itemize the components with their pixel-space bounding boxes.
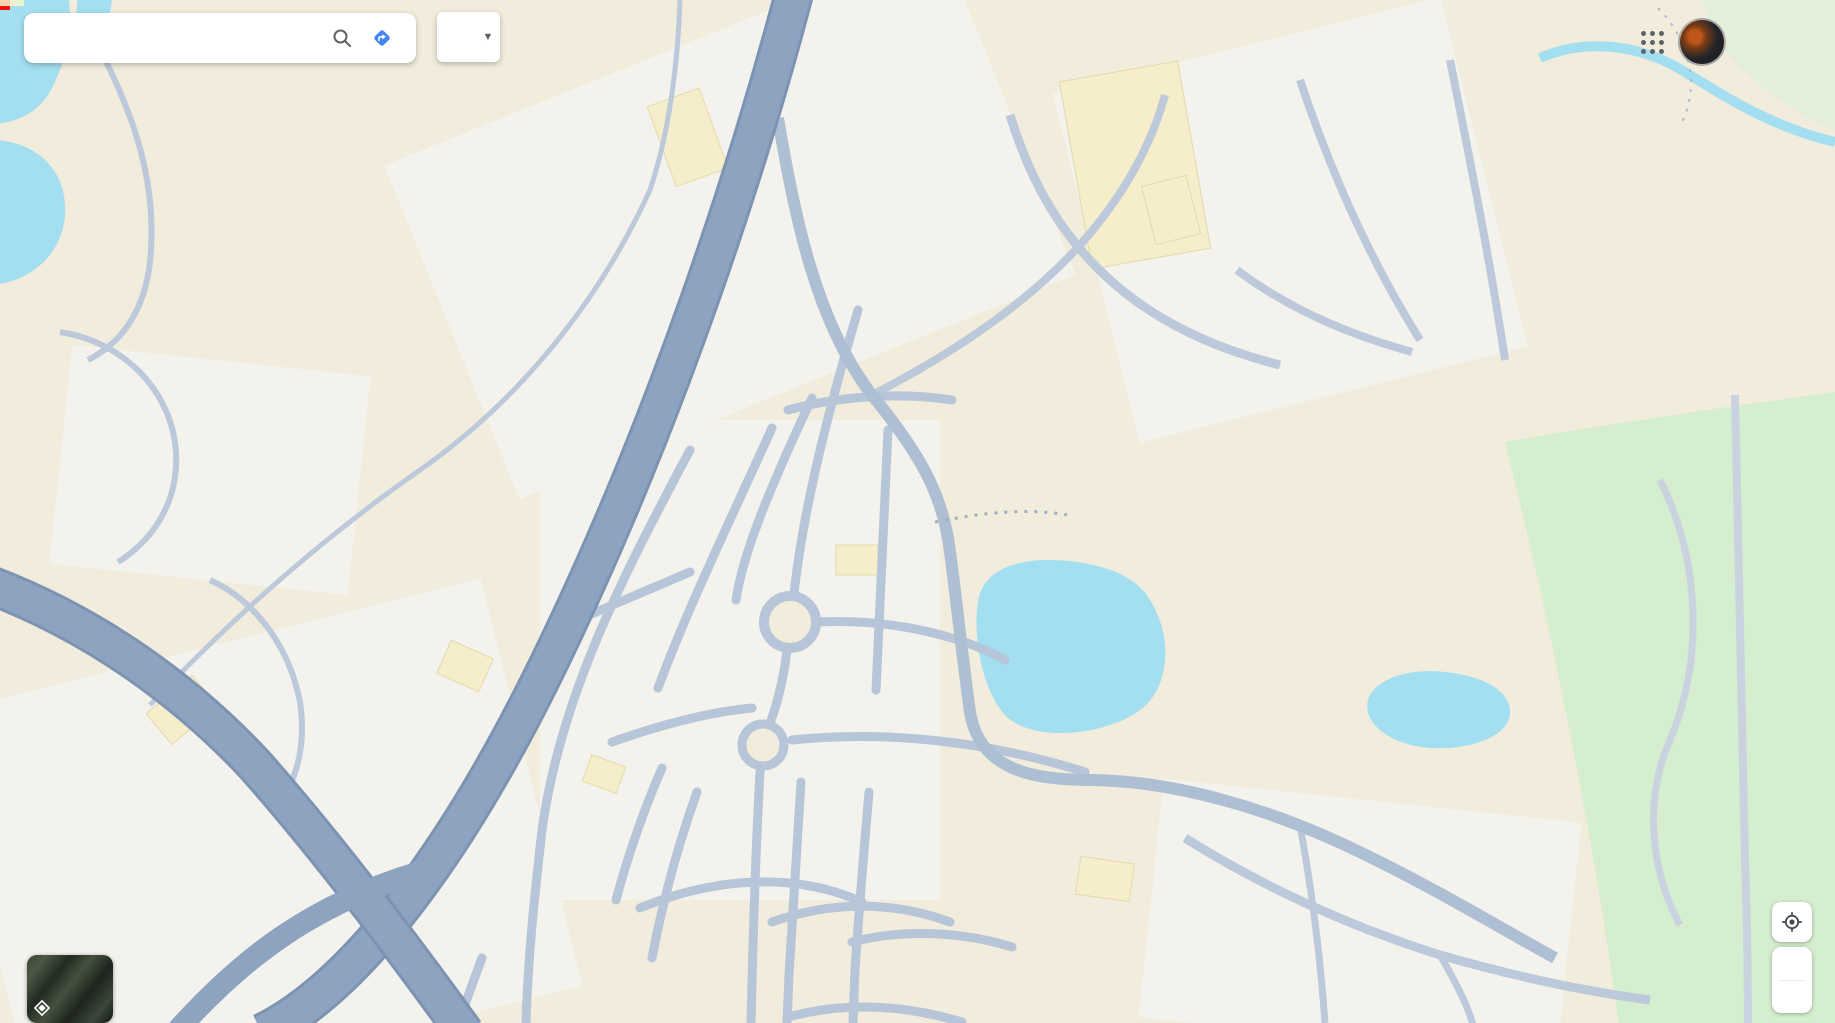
lake-ho-chau-thoi	[976, 560, 1165, 733]
zoom-out-button[interactable]	[1772, 981, 1812, 1014]
input-method-toolbar[interactable]: ▼	[437, 12, 500, 62]
map-canvas[interactable]	[0, 0, 1835, 1023]
satellite-layer-toggle[interactable]	[27, 955, 113, 1023]
search-icon[interactable]	[322, 18, 362, 58]
my-location-button[interactable]	[1772, 902, 1812, 942]
account-avatar[interactable]	[1678, 18, 1726, 66]
search-box[interactable]	[24, 13, 416, 63]
directions-icon[interactable]	[362, 18, 402, 58]
search-input[interactable]	[44, 28, 322, 48]
layers-icon	[34, 1000, 50, 1016]
ime-dropdown-caret[interactable]: ▼	[476, 31, 500, 43]
google-apps-grid-icon[interactable]	[1641, 31, 1665, 55]
google-maps-window: ▼	[0, 0, 1835, 1023]
site-annotation-label	[0, 0, 24, 6]
zoom-in-button[interactable]	[1772, 947, 1812, 980]
zoom-controls	[1772, 947, 1812, 1013]
